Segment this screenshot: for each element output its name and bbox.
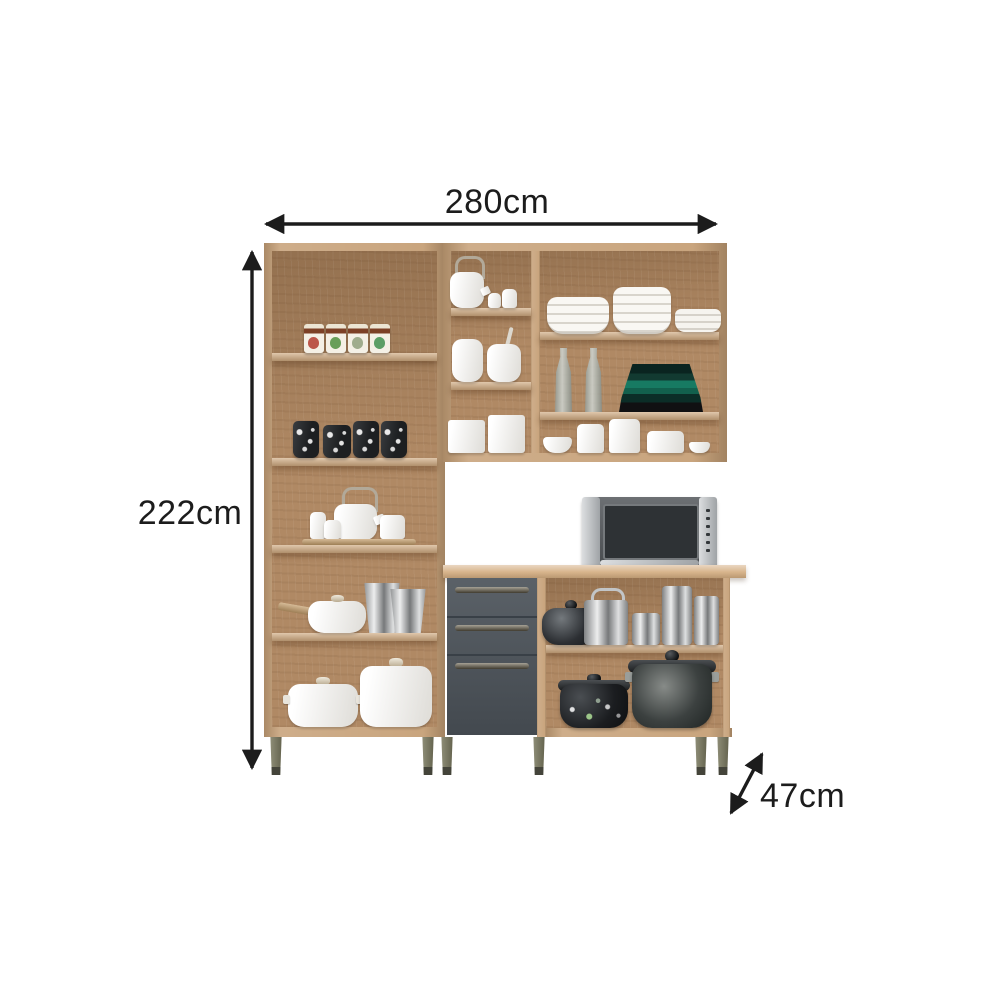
shelf: [451, 382, 531, 390]
food-tin: [370, 324, 390, 353]
width-dimension-label: 280cm: [417, 183, 577, 222]
microwave-control-panel: [699, 497, 717, 568]
cabinet-leg: [716, 737, 730, 775]
cabinet-leg: [440, 737, 454, 775]
drawer-handle: [455, 625, 529, 631]
drawer-unit: [447, 578, 537, 735]
canister: [609, 419, 640, 453]
patterned-mug: [353, 421, 379, 458]
drawer-divider: [447, 616, 537, 618]
green-plate-stack: [619, 364, 703, 412]
wall-cabinet: [443, 243, 727, 462]
canister: [380, 515, 405, 539]
creamer: [502, 289, 517, 308]
base-cabinet-bottom: [546, 728, 732, 737]
shelf: [272, 545, 437, 553]
microwave-left-panel: [582, 497, 600, 568]
shelf: [451, 308, 531, 316]
plate-stack: [675, 309, 721, 332]
lidded-pot: [288, 684, 358, 727]
height-dimension-label: 222cm: [112, 494, 268, 533]
storage-jar: [452, 339, 483, 382]
shelf: [272, 353, 437, 361]
saucepan: [308, 601, 366, 633]
drawer-divider: [447, 654, 537, 656]
microwave-window: [603, 504, 699, 560]
patterned-mug: [323, 425, 351, 458]
pot-handle-nub: [283, 695, 290, 704]
pot-body: [560, 684, 628, 728]
patterned-mug: [293, 421, 319, 458]
canister: [324, 520, 341, 539]
drawer-side-strip: [537, 578, 546, 737]
base-cabinet-body: [445, 578, 730, 737]
food-tin: [348, 324, 368, 353]
patterned-mug: [381, 421, 407, 458]
product-dimension-image: 280cm 222cm 47cm: [0, 0, 1000, 1000]
food-tin: [326, 324, 346, 353]
food-tin: [304, 324, 324, 353]
kettle: [450, 272, 484, 308]
cabinet-divider: [531, 251, 540, 453]
lidded-pot: [360, 666, 432, 727]
depth-dimension-label: 47cm: [760, 777, 880, 816]
wooden-tray: [302, 539, 416, 545]
base-cabinet-side: [723, 578, 730, 737]
steel-canister-tall: [662, 586, 692, 645]
creamer: [488, 293, 501, 308]
cabinet-leg: [421, 737, 435, 775]
storage-jar: [487, 344, 521, 382]
depth-arrow: [731, 754, 762, 813]
drawer-handle: [455, 587, 529, 593]
pot-handle-nub: [711, 672, 719, 682]
cabinet-leg: [694, 737, 708, 775]
steel-kettle: [584, 588, 628, 645]
cabinet-leg: [532, 737, 546, 775]
countertop: [443, 565, 746, 578]
ramekin: [647, 431, 684, 453]
cabinet-leg: [269, 737, 283, 775]
steel-canister: [632, 613, 660, 645]
kettle-body: [584, 600, 628, 645]
saucepan-knob: [331, 595, 344, 602]
bowl-stack: [613, 287, 671, 334]
floral-stew-pot: [560, 674, 628, 728]
microwave: [582, 497, 717, 568]
stock-pot: [632, 650, 712, 728]
square-canister: [488, 415, 525, 453]
shelf: [272, 633, 437, 641]
bowl-stack: [547, 297, 609, 334]
canister: [577, 424, 604, 453]
base-cabinet: [443, 565, 746, 737]
shelf: [272, 458, 437, 466]
steel-canister-tall: [694, 596, 719, 645]
square-canister: [448, 420, 485, 453]
pot-body: [632, 664, 712, 728]
drawer-handle: [455, 663, 529, 669]
tall-cabinet: [264, 243, 445, 737]
